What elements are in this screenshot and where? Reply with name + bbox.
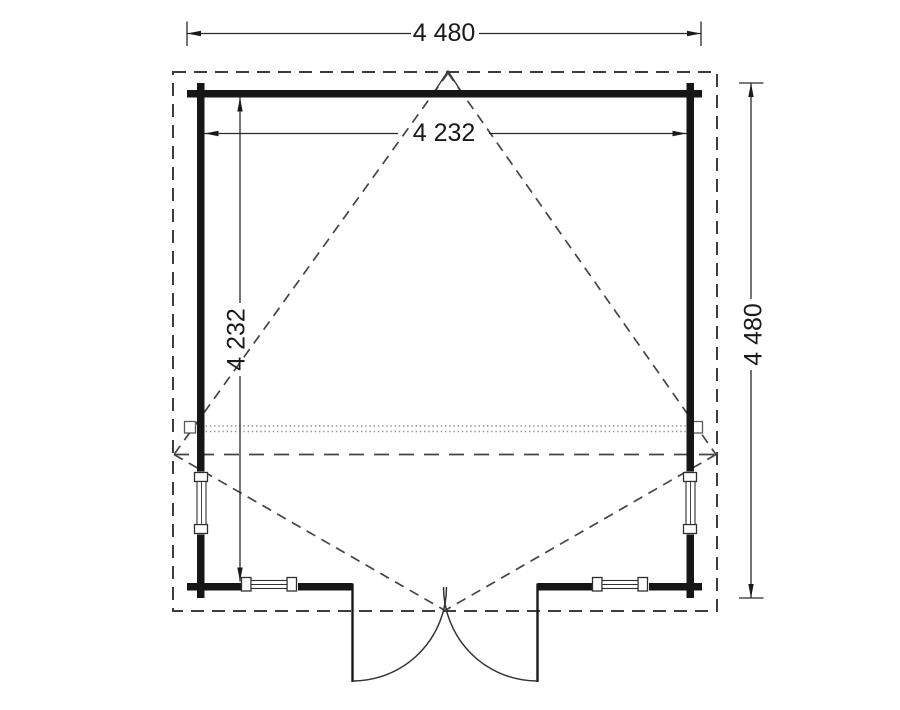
log-walls [187,83,702,598]
dimension-label-internal-depth: 4 232 [223,290,250,390]
double-door [353,584,538,683]
dimension-label-overall-width: 4 480 [394,20,494,47]
dimension-label-internal-width: 4 232 [394,120,494,147]
window-front-left [241,578,298,593]
window-front-right [592,578,649,593]
overhead-beam-dotted [185,422,703,434]
door-swing-right-arc [444,587,538,681]
dimension-label-overall-depth: 4 480 [740,285,767,385]
floor-plan: 4 480 4 232 4 232 4 480 [0,0,900,710]
window-right-wall [683,472,697,535]
roof-ridge-lines [174,71,716,611]
wall-back [187,90,702,98]
beam-end-left [185,422,196,434]
door-swing-left-arc [353,587,447,681]
window-left-wall [194,472,208,535]
